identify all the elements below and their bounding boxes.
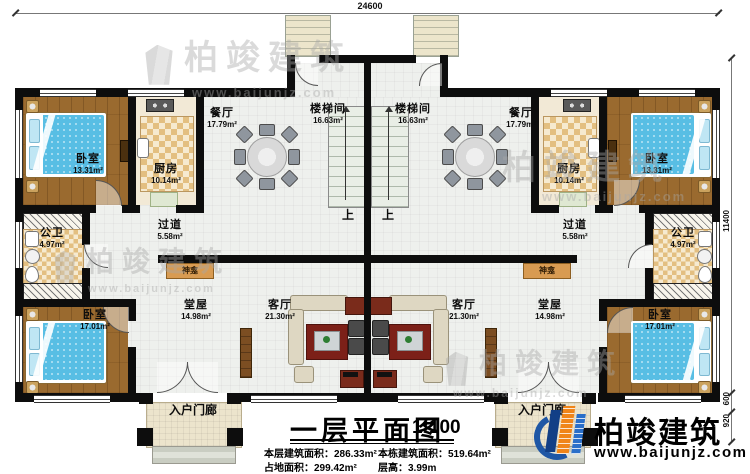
stat-footprint-area: 占地面积：299.42m² <box>264 459 357 474</box>
label-dining-left: 餐厅17.79m² <box>187 108 257 129</box>
label-bedroom-bottom-left: 卧室17.01m² <box>60 310 130 331</box>
dimension-total-height: 11400 <box>722 210 731 232</box>
floorplan-canvas: 24600 11400 600 920 <box>0 0 750 474</box>
baijun-logo-icon <box>534 406 590 464</box>
label-kitchen-left: 厨房10.14m² <box>131 164 201 185</box>
stairs-up-right: 上 <box>380 206 396 223</box>
entry-porch-label-left: 入户门廊 <box>149 401 237 418</box>
washer-icon <box>25 249 40 264</box>
stove-icon <box>146 99 174 112</box>
label-main-hall-right: 堂屋14.98m² <box>515 300 585 321</box>
stove-icon <box>563 99 591 112</box>
label-bedroom-top-right: 卧室13.31m² <box>622 154 692 175</box>
label-main-hall-left: 堂屋14.98m² <box>161 300 231 321</box>
label-bedroom-bottom-right: 卧室17.01m² <box>625 310 695 331</box>
fridge-icon <box>150 192 178 207</box>
watermark-logo-icon <box>142 45 176 85</box>
label-living-right: 客厅21.30m² <box>429 300 499 321</box>
fridge-icon <box>559 192 587 207</box>
dimension-920: 920 <box>722 414 731 427</box>
label-kitchen-right: 厨房10.14m² <box>534 164 604 185</box>
label-dining-right: 餐厅17.79m² <box>486 108 556 129</box>
tv-icon <box>377 372 392 377</box>
label-bathroom-right: 公卫4.97m² <box>648 228 718 249</box>
label-stairwell-right: 楼梯间16.63m² <box>378 104 448 125</box>
label-bathroom-left: 公卫4.97m² <box>17 228 87 249</box>
label-living-left: 客厅21.30m² <box>245 300 315 321</box>
entry-steps-left <box>152 446 236 464</box>
stat-storey-height: 层高：3.99m <box>378 459 436 474</box>
plan-scale: 1:100 <box>412 417 461 439</box>
hall-cabinet-right <box>485 328 497 378</box>
kitchen-sink-icon <box>137 138 149 158</box>
stairs-up-left: 上 <box>340 206 356 223</box>
label-hallway-right: 过道5.58m² <box>540 220 610 241</box>
back-porch-left <box>285 15 331 57</box>
toilet-icon <box>698 266 712 283</box>
stat-building-area: 本栋建筑面积：519.64m² <box>378 445 491 460</box>
washer-icon <box>697 249 712 264</box>
brand-url: www.baijunjz.com <box>594 444 747 461</box>
hall-cabinet-left <box>240 328 252 378</box>
dimension-600: 600 <box>722 392 731 405</box>
shrine-left: 神龛 <box>166 263 214 279</box>
label-hallway-left: 过道5.58m² <box>135 220 205 241</box>
label-bedroom-top-left: 卧室13.31m² <box>53 154 123 175</box>
shrine-right: 神龛 <box>523 263 571 279</box>
dimension-total-width: 24600 <box>340 1 400 11</box>
label-stairwell-left: 楼梯间16.63m² <box>293 104 363 125</box>
toilet-icon <box>25 266 39 283</box>
back-porch-right <box>413 15 459 57</box>
tv-icon <box>343 372 358 377</box>
stat-floor-area: 本层建筑面积：286.33m² <box>264 445 377 460</box>
